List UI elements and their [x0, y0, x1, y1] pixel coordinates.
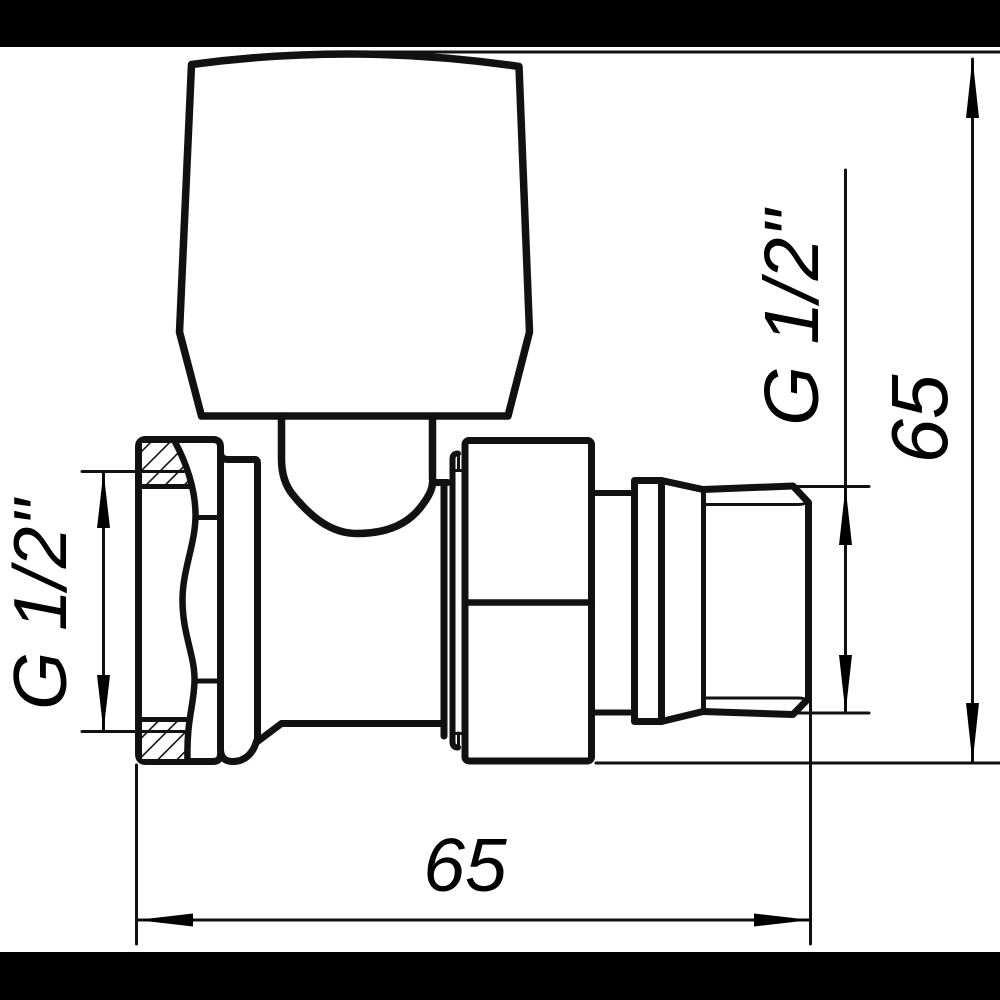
svg-text:65: 65: [875, 374, 964, 463]
svg-text:G 1/2": G 1/2": [0, 497, 82, 710]
svg-text:G 1/2": G 1/2": [749, 207, 835, 426]
svg-text:65: 65: [423, 823, 507, 907]
